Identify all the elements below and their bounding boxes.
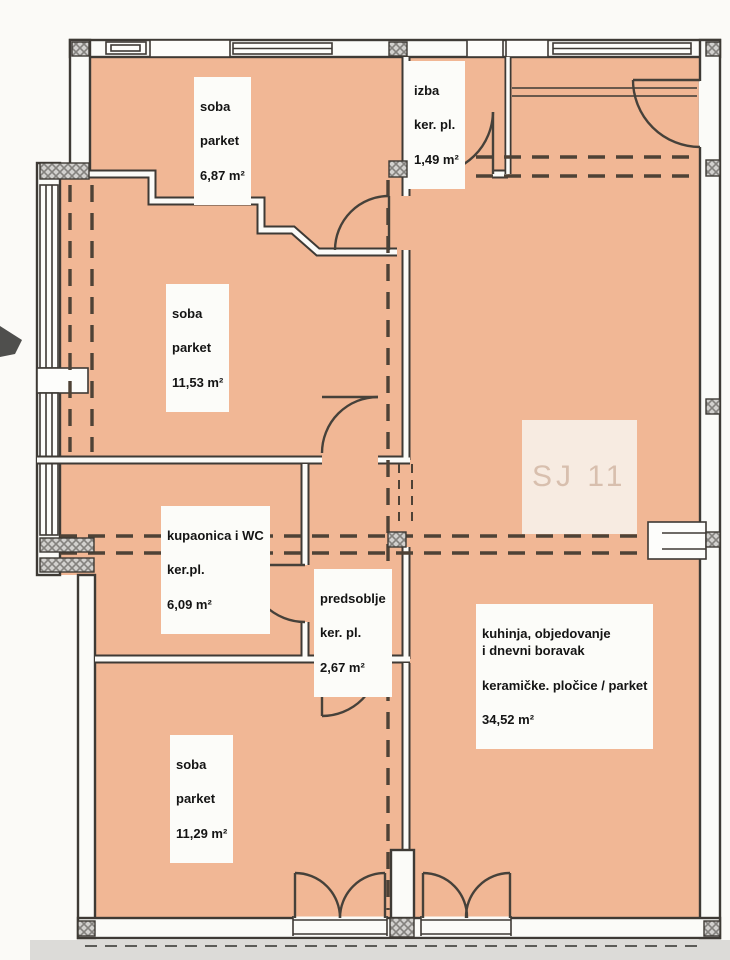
room-name: soba — [176, 756, 227, 773]
unit-label: SJ 11 — [522, 420, 637, 534]
room-floor: ker. pl. — [414, 116, 459, 133]
room-floor: parket — [172, 339, 223, 356]
room-area: 6,87 m² — [200, 167, 245, 184]
room-name: izba — [414, 82, 459, 99]
room-area: 2,67 m² — [320, 659, 386, 676]
room-name: predsoblje — [320, 590, 386, 607]
room-floor: parket — [200, 132, 245, 149]
room-label-izba: izba ker. pl. 1,49 m² — [408, 61, 465, 189]
room-label-predsoblje: predsoblje ker. pl. 2,67 m² — [314, 569, 392, 697]
room-label-kuhinja: kuhinja, objedovanje i dnevni boravak ke… — [476, 604, 653, 749]
room-label-soba-1: soba parket 6,87 m² — [194, 77, 251, 205]
floor-plan-page: soba parket 6,87 m² izba ker. pl. 1,49 m… — [0, 0, 730, 960]
unit-label-text: SJ 11 — [532, 459, 627, 495]
room-floor: ker. pl. — [320, 624, 386, 641]
room-floor: keramičke. pločice / parket — [482, 677, 647, 694]
scan-artifact — [0, 326, 22, 357]
room-floor: ker.pl. — [167, 561, 264, 578]
room-name: kuhinja, objedovanje i dnevni boravak — [482, 625, 647, 659]
room-area: 11,53 m² — [172, 374, 223, 391]
room-label-soba-2: soba parket 11,53 m² — [166, 284, 229, 412]
room-label-soba-3: soba parket 11,29 m² — [170, 735, 233, 863]
room-name: soba — [172, 305, 223, 322]
room-area: 1,49 m² — [414, 151, 459, 168]
room-area: 6,09 m² — [167, 596, 264, 613]
shaft-niche — [648, 522, 706, 559]
outside-strip — [30, 940, 730, 960]
room-floor: parket — [176, 790, 227, 807]
room-name: soba — [200, 98, 245, 115]
room-area: 34,52 m² — [482, 711, 647, 728]
room-area: 11,29 m² — [176, 825, 227, 842]
room-name: kupaonica i WC — [167, 527, 264, 544]
room-label-kupaonica: kupaonica i WC ker.pl. 6,09 m² — [161, 506, 270, 634]
